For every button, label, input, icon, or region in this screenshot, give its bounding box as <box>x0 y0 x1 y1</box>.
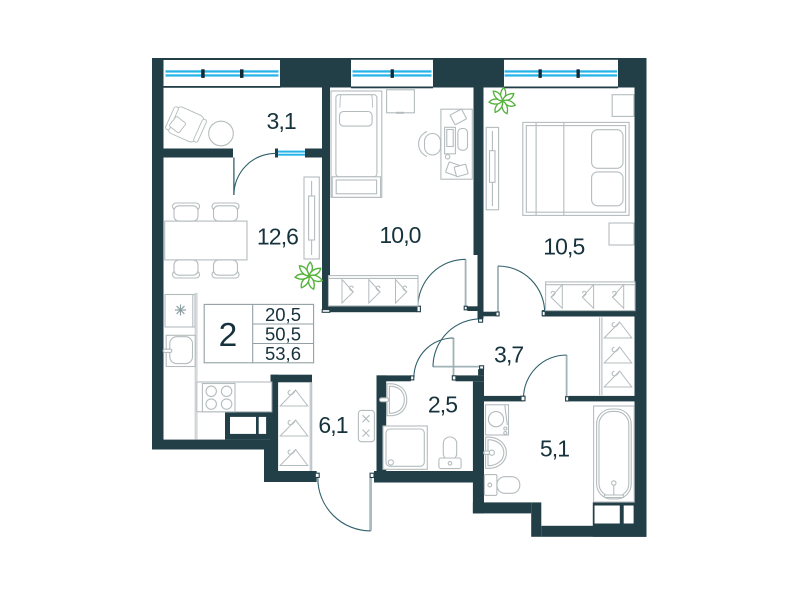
svg-text:2,5: 2,5 <box>428 391 457 417</box>
svg-text:5,1: 5,1 <box>540 435 569 461</box>
svg-text:53,6: 53,6 <box>265 343 301 364</box>
svg-text:50,5: 50,5 <box>265 323 301 344</box>
svg-text:10,5: 10,5 <box>543 233 584 259</box>
svg-text:20,5: 20,5 <box>265 304 301 325</box>
svg-text:3,7: 3,7 <box>494 342 523 368</box>
svg-text:3,1: 3,1 <box>267 108 296 134</box>
svg-text:10,0: 10,0 <box>379 222 420 248</box>
svg-text:6,1: 6,1 <box>318 412 347 438</box>
svg-text:2: 2 <box>219 317 238 354</box>
svg-text:12,6: 12,6 <box>257 223 298 249</box>
